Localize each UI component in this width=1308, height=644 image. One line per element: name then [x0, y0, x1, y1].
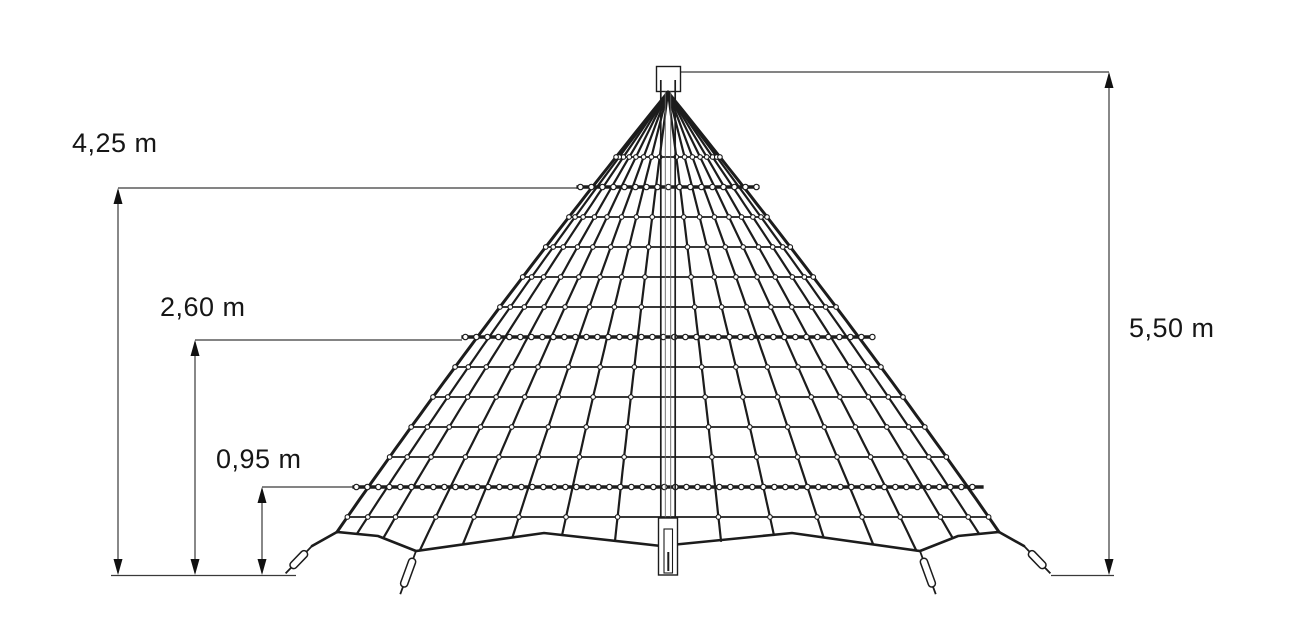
rope-bead	[420, 484, 425, 489]
arrow-up-icon	[114, 188, 123, 204]
arrow-up-icon	[1105, 72, 1114, 88]
rope-connector-node	[879, 365, 884, 370]
rope-connector-node	[345, 515, 350, 520]
rope-connector-node	[577, 455, 582, 460]
rope-connector-node	[598, 365, 603, 370]
rope-connector-node	[478, 425, 483, 430]
rope-connector-node	[898, 515, 903, 520]
dimension-label-height-4-25: 4,25 m	[72, 129, 158, 157]
rope-bead	[871, 484, 876, 489]
rope-bead	[684, 484, 689, 489]
rope-connector-node	[703, 395, 708, 400]
rope-connector-node	[510, 365, 515, 370]
rope-bead	[409, 484, 414, 489]
rope-connector-node	[614, 155, 619, 160]
rope-connector-node	[393, 515, 398, 520]
rope-connector-node	[901, 395, 906, 400]
rope-connector-node	[860, 515, 865, 520]
rope-connector-node	[529, 275, 534, 280]
rope-connector-node	[522, 395, 527, 400]
rope-bead	[754, 184, 759, 189]
rope-connector-node	[387, 455, 392, 460]
rope-bead	[805, 484, 810, 489]
rope-connector-node	[690, 155, 695, 160]
rope-connector-node	[734, 275, 739, 280]
rope-bead	[541, 484, 546, 489]
rope-connector-node	[773, 275, 778, 280]
rope-connector-node	[823, 305, 828, 310]
rope-bead	[849, 484, 854, 489]
anchor-pin	[286, 568, 292, 574]
rope-connector-node	[453, 365, 458, 370]
arrow-down-icon	[1105, 559, 1114, 575]
rope-connector-node	[627, 245, 632, 250]
rope-connector-node	[615, 515, 620, 520]
rope-connector-node	[710, 455, 715, 460]
rope-connector-node	[775, 395, 780, 400]
ring-ropes	[345, 155, 991, 520]
rope-connector-node	[796, 365, 801, 370]
rope-bead	[732, 184, 737, 189]
rope-connector-node	[608, 245, 613, 250]
climbing-net	[283, 67, 1053, 596]
turnbuckle-icon	[919, 557, 936, 588]
rope-bead	[915, 484, 920, 489]
ground-anchor	[1021, 543, 1053, 575]
rope-connector-node	[747, 425, 752, 430]
rope-bead	[611, 184, 616, 189]
rope-connector-node	[564, 515, 569, 520]
rope-bead	[794, 484, 799, 489]
rope-connector-node	[986, 515, 991, 520]
rope-bead	[688, 184, 693, 189]
rope-connector-node	[622, 455, 627, 460]
rope-bead	[793, 334, 798, 339]
rope-bead	[617, 334, 622, 339]
rope-bead	[716, 334, 721, 339]
rope-connector-node	[643, 275, 648, 280]
rope-connector-node	[770, 245, 775, 250]
rope-bead	[677, 184, 682, 189]
rope-connector-node	[632, 365, 637, 370]
rope-connector-node	[619, 215, 624, 220]
rope-connector-node	[886, 395, 891, 400]
rope-connector-node	[509, 425, 514, 430]
rope-bead	[827, 484, 832, 489]
rope-bead	[540, 334, 545, 339]
rope-connector-node	[646, 245, 651, 250]
rope-connector-node	[433, 515, 438, 520]
central-mast	[659, 80, 678, 575]
arrow-down-icon	[114, 559, 123, 575]
rope-bead	[706, 484, 711, 489]
dimension-lines	[111, 72, 1114, 576]
rope-bead	[622, 184, 627, 189]
rope-bead	[644, 184, 649, 189]
radial-rope	[668, 92, 873, 544]
rope-connector-node	[926, 455, 931, 460]
rope-connector-node	[598, 275, 603, 280]
rope-bead	[552, 484, 557, 489]
rope-bead	[640, 484, 645, 489]
rope-connector-node	[629, 395, 634, 400]
rope-connector-node	[634, 155, 639, 160]
rope-connector-node	[546, 425, 551, 430]
rope-bead	[783, 484, 788, 489]
rope-bead	[651, 484, 656, 489]
rope-bead	[816, 484, 821, 489]
rope-bead	[815, 334, 820, 339]
rope-connector-node	[769, 305, 774, 310]
rope-bead	[584, 334, 589, 339]
rope-connector-node	[765, 365, 770, 370]
rope-bead	[474, 334, 479, 339]
rope-bead	[721, 184, 726, 189]
rope-connector-node	[785, 425, 790, 430]
anchor-pin	[1045, 568, 1051, 574]
rope-connector-node	[835, 455, 840, 460]
rope-connector-node	[765, 215, 770, 220]
rope-pyramid-elevation-drawing	[0, 0, 1308, 644]
rope-connector-node	[712, 215, 717, 220]
rope-bead	[717, 484, 722, 489]
rope-connector-node	[716, 515, 721, 520]
rope-connector-node	[741, 245, 746, 250]
rope-bead	[760, 334, 765, 339]
rope-connector-node	[405, 455, 410, 460]
rope-bead	[771, 334, 776, 339]
rope-connector-node	[865, 365, 870, 370]
rope-connector-node	[425, 425, 430, 430]
rope-connector-node	[809, 305, 814, 310]
rope-connector-node	[718, 155, 723, 160]
rope-connector-node	[811, 275, 816, 280]
rope-connector-node	[445, 395, 450, 400]
rope-bead	[710, 184, 715, 189]
rope-connector-node	[517, 515, 522, 520]
dimension-label-height-2-60: 2,60 m	[160, 293, 246, 321]
rope-connector-node	[573, 215, 578, 220]
arrow-up-icon	[258, 487, 267, 503]
rope-connector-node	[463, 455, 468, 460]
rope-connector-node	[650, 215, 655, 220]
rope-connector-node	[591, 395, 596, 400]
rope-connector-node	[612, 305, 617, 310]
rope-bead	[699, 184, 704, 189]
rope-connector-node	[802, 275, 807, 280]
rope-connector-node	[592, 215, 597, 220]
rope-connector-node	[790, 305, 795, 310]
turnbuckle-icon	[1027, 549, 1047, 570]
rope-connector-node	[741, 395, 746, 400]
anchor-rope	[920, 551, 923, 559]
ground-anchor	[397, 550, 419, 596]
rope-bead	[782, 334, 787, 339]
rope-bead	[694, 334, 699, 339]
rope-bead	[893, 484, 898, 489]
rope-connector-node	[466, 365, 471, 370]
rope-connector-node	[685, 245, 690, 250]
rope-bead	[574, 484, 579, 489]
dimension-3	[680, 72, 1114, 575]
rope-connector-node	[584, 425, 589, 430]
rope-connector-node	[712, 275, 717, 280]
rope-connector-node	[689, 275, 694, 280]
rope-bead	[562, 334, 567, 339]
rope-connector-node	[591, 245, 596, 250]
rope-connector-node	[497, 455, 502, 460]
rope-bead	[633, 184, 638, 189]
rope-bead	[772, 484, 777, 489]
rope-connector-node	[705, 245, 710, 250]
rope-connector-node	[739, 215, 744, 220]
rope-connector-node	[884, 425, 889, 430]
rope-connector-node	[751, 215, 756, 220]
radial-rope	[420, 92, 668, 551]
rope-bead	[838, 484, 843, 489]
rope-connector-node	[754, 455, 759, 460]
rope-connector-node	[903, 455, 908, 460]
rope-connector-node	[706, 425, 711, 430]
turnbuckle-icon	[400, 557, 417, 588]
rope-bead	[970, 484, 975, 489]
rope-bead	[650, 334, 655, 339]
rope-bead	[750, 484, 755, 489]
rope-connector-node	[520, 275, 525, 280]
rope-connector-node	[744, 305, 749, 310]
rope-connector-node	[556, 395, 561, 400]
rope-bead	[475, 484, 480, 489]
rope-bead	[607, 484, 612, 489]
rope-connector-node	[508, 305, 513, 310]
rope-connector-node	[541, 275, 546, 280]
rope-connector-node	[704, 155, 709, 160]
rope-connector-node	[944, 455, 949, 460]
rope-connector-node	[649, 155, 654, 160]
rope-connector-node	[759, 215, 764, 220]
arrow-down-icon	[258, 559, 267, 575]
rope-connector-node	[682, 155, 687, 160]
rope-connector-node	[809, 395, 814, 400]
rope-connector-node	[756, 245, 761, 250]
rope-connector-node	[790, 275, 795, 280]
rope-connector-node	[780, 245, 785, 250]
rope-connector-node	[727, 215, 732, 220]
rope-bead	[398, 484, 403, 489]
rope-bead	[870, 334, 875, 339]
rope-bead	[507, 334, 512, 339]
anchor-pin	[933, 587, 936, 595]
rope-connector-node	[543, 245, 548, 250]
rope-connector-node	[567, 215, 572, 220]
rope-connector-node	[577, 275, 582, 280]
rope-connector-node	[868, 455, 873, 460]
rope-connector-node	[719, 305, 724, 310]
rope-bead	[376, 484, 381, 489]
rope-connector-node	[697, 215, 702, 220]
rope-connector-node	[472, 515, 477, 520]
rope-bead	[573, 334, 578, 339]
rope-bead	[628, 334, 633, 339]
rope-bead	[453, 484, 458, 489]
rope-bead	[596, 484, 601, 489]
rope-bead	[464, 484, 469, 489]
rope-bead	[738, 334, 743, 339]
rope-bead	[618, 484, 623, 489]
rope-bead	[743, 184, 748, 189]
arrow-down-icon	[191, 559, 200, 575]
rope-bead	[761, 484, 766, 489]
rope-connector-node	[465, 395, 470, 400]
rope-connector-node	[847, 365, 852, 370]
rope-connector-node	[494, 395, 499, 400]
rope-bead	[804, 334, 809, 339]
rope-connector-node	[536, 365, 541, 370]
rope-connector-node	[563, 305, 568, 310]
rope-connector-node	[768, 515, 773, 520]
rope-bead	[606, 334, 611, 339]
rope-connector-node	[853, 425, 858, 430]
rope-connector-node	[409, 425, 414, 430]
rope-bead	[848, 334, 853, 339]
rope-bead	[431, 484, 436, 489]
rope-connector-node	[605, 215, 610, 220]
rope-bead	[387, 484, 392, 489]
ground-anchor	[917, 550, 939, 596]
rope-connector-node	[558, 275, 563, 280]
rope-bead	[585, 484, 590, 489]
rope-connector-node	[447, 425, 452, 430]
rope-connector-node	[581, 215, 586, 220]
rope-connector-node	[822, 425, 827, 430]
rope-bead	[463, 334, 468, 339]
rope-connector-node	[365, 515, 370, 520]
rope-bead	[563, 484, 568, 489]
rope-connector-node	[551, 245, 556, 250]
rope-connector-node	[692, 305, 697, 310]
drawing-canvas: 4,25 m 2,60 m 0,95 m 5,50 m	[0, 0, 1308, 644]
rope-connector-node	[639, 305, 644, 310]
rope-bead	[639, 334, 644, 339]
radial-rope	[668, 92, 916, 551]
rope-connector-node	[838, 395, 843, 400]
radial-rope	[463, 92, 668, 544]
rope-bead	[518, 334, 523, 339]
rope-connector-node	[795, 455, 800, 460]
rope-bead	[705, 334, 710, 339]
rope-bead	[486, 484, 491, 489]
rope-connector-node	[699, 365, 704, 370]
rope-connector-node	[966, 515, 971, 520]
rope-connector-node	[641, 155, 646, 160]
rope-connector-node	[587, 305, 592, 310]
rope-bead	[508, 484, 513, 489]
anchor-rope	[1024, 546, 1030, 552]
rope-connector-node	[698, 155, 703, 160]
rope-connector-node	[634, 215, 639, 220]
rope-bead	[530, 484, 535, 489]
rope-connector-node	[788, 245, 793, 250]
rope-connector-node	[627, 155, 632, 160]
anchor-rope	[413, 551, 416, 559]
rope-bead	[728, 484, 733, 489]
rope-bead	[860, 484, 865, 489]
arrow-up-icon	[191, 340, 200, 356]
rope-bead	[600, 184, 605, 189]
rope-connector-node	[484, 365, 489, 370]
rope-bead	[497, 484, 502, 489]
rope-bead	[904, 484, 909, 489]
rope-bead	[589, 184, 594, 189]
rope-bead	[882, 484, 887, 489]
rope-connector-node	[866, 395, 871, 400]
rope-connector-node	[429, 455, 434, 460]
rope-bead	[683, 334, 688, 339]
rope-bead	[551, 334, 556, 339]
rope-bead	[739, 484, 744, 489]
rope-bead	[365, 484, 370, 489]
anchor-rope	[306, 546, 312, 552]
rope-connector-node	[906, 425, 911, 430]
rope-connector-node	[923, 425, 928, 430]
rope-connector-node	[815, 515, 820, 520]
rope-bead	[442, 484, 447, 489]
rope-connector-node	[625, 425, 630, 430]
rope-connector-node	[822, 365, 827, 370]
rope-bead	[629, 484, 634, 489]
rope-bead	[578, 184, 583, 189]
rope-bead	[749, 334, 754, 339]
rope-connector-node	[542, 305, 547, 310]
rope-bead	[496, 334, 501, 339]
rope-connector-node	[536, 455, 541, 460]
rope-bead	[926, 484, 931, 489]
anchor-pin	[400, 587, 403, 595]
rope-bead	[937, 484, 942, 489]
rope-bead	[519, 484, 524, 489]
dimension-label-height-0-95: 0,95 m	[216, 445, 302, 473]
rope-bead	[727, 334, 732, 339]
rope-bead	[948, 484, 953, 489]
rope-bead	[354, 484, 359, 489]
rope-bead	[859, 334, 864, 339]
rope-connector-node	[755, 275, 760, 280]
rope-connector-node	[566, 365, 571, 370]
rope-connector-node	[561, 245, 566, 250]
rope-bead	[655, 184, 660, 189]
rope-connector-node	[431, 395, 436, 400]
dimension-2	[258, 487, 373, 575]
rope-connector-node	[575, 245, 580, 250]
rope-connector-node	[723, 245, 728, 250]
rope-connector-node	[619, 275, 624, 280]
rope-bead	[959, 484, 964, 489]
rope-connector-node	[681, 215, 686, 220]
rope-bead	[826, 334, 831, 339]
rope-bead	[662, 484, 667, 489]
rope-bead	[595, 334, 600, 339]
ground-anchor	[283, 543, 315, 575]
rope-bead	[529, 334, 534, 339]
rope-connector-node	[938, 515, 943, 520]
rope-connector-node	[498, 305, 503, 310]
rope-bead	[695, 484, 700, 489]
rope-connector-node	[734, 365, 739, 370]
dimension-label-total-height-5-50: 5,50 m	[1129, 314, 1215, 342]
turnbuckle-icon	[289, 549, 309, 570]
rope-connector-node	[834, 305, 839, 310]
rope-connector-node	[522, 305, 527, 310]
